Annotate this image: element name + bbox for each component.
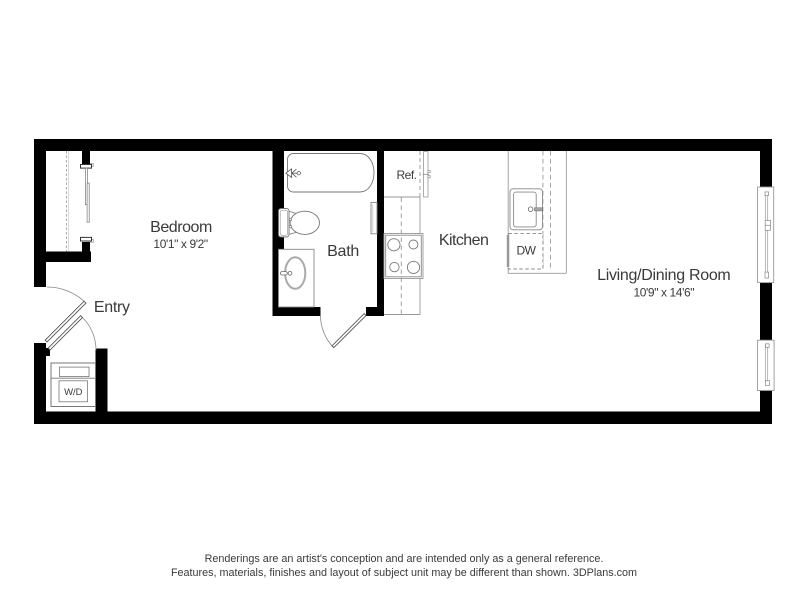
svg-text:W/D: W/D (64, 387, 83, 398)
svg-text:Living/Dining Room: Living/Dining Room (597, 267, 730, 284)
svg-text:Entry: Entry (94, 299, 130, 316)
svg-text:Bedroom: Bedroom (150, 219, 212, 236)
svg-text:Bath: Bath (327, 243, 359, 260)
svg-text:DW: DW (517, 244, 537, 258)
svg-text:10'1" x 9'2": 10'1" x 9'2" (153, 237, 207, 251)
svg-text:Ref.: Ref. (396, 168, 416, 182)
svg-text:Renderings are an artist's con: Renderings are an artist's conception an… (205, 553, 604, 565)
svg-text:Kitchen: Kitchen (439, 232, 489, 249)
svg-text:Features, materials, finishes: Features, materials, finishes and layout… (171, 567, 637, 579)
svg-text:10'9" x 14'6": 10'9" x 14'6" (633, 285, 694, 299)
